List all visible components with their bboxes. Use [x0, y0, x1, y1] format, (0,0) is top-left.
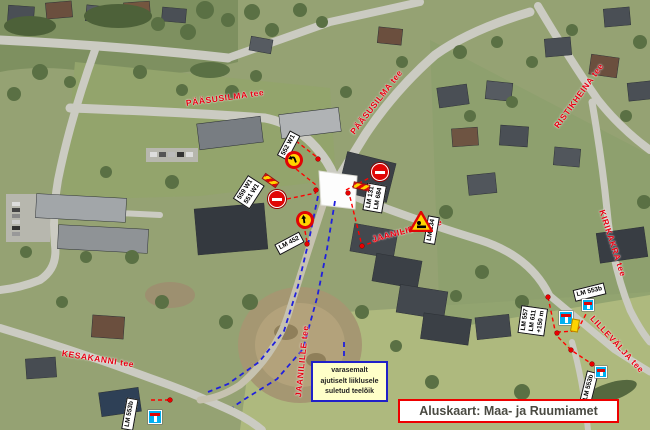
basemap-credit: Aluskaart: Maa- ja Ruumiamet [398, 399, 619, 423]
closure-note-line: varasemalt [313, 366, 386, 377]
no-entry-sign-icon [371, 163, 389, 181]
closure-note: varasemalt ajutiselt liiklusele suletud … [311, 361, 388, 402]
closure-note-line: ajutiselt liiklusele [313, 377, 386, 388]
closure-note-line: suletud teelõik [313, 387, 386, 398]
dead-end-sign-icon [582, 299, 594, 311]
traffic-management-map: PÄÄSUSILMA tee PÄÄSUSILMA tee RISTIKHEIN… [0, 0, 650, 430]
dead-end-sign-icon [595, 366, 607, 378]
sign-code-line: LM 553b [124, 401, 136, 428]
no-entry-sign-icon [268, 190, 286, 208]
sign-code-label: LM 557 LM 611 +150 m [517, 305, 548, 337]
dead-end-sign-icon [148, 410, 162, 424]
